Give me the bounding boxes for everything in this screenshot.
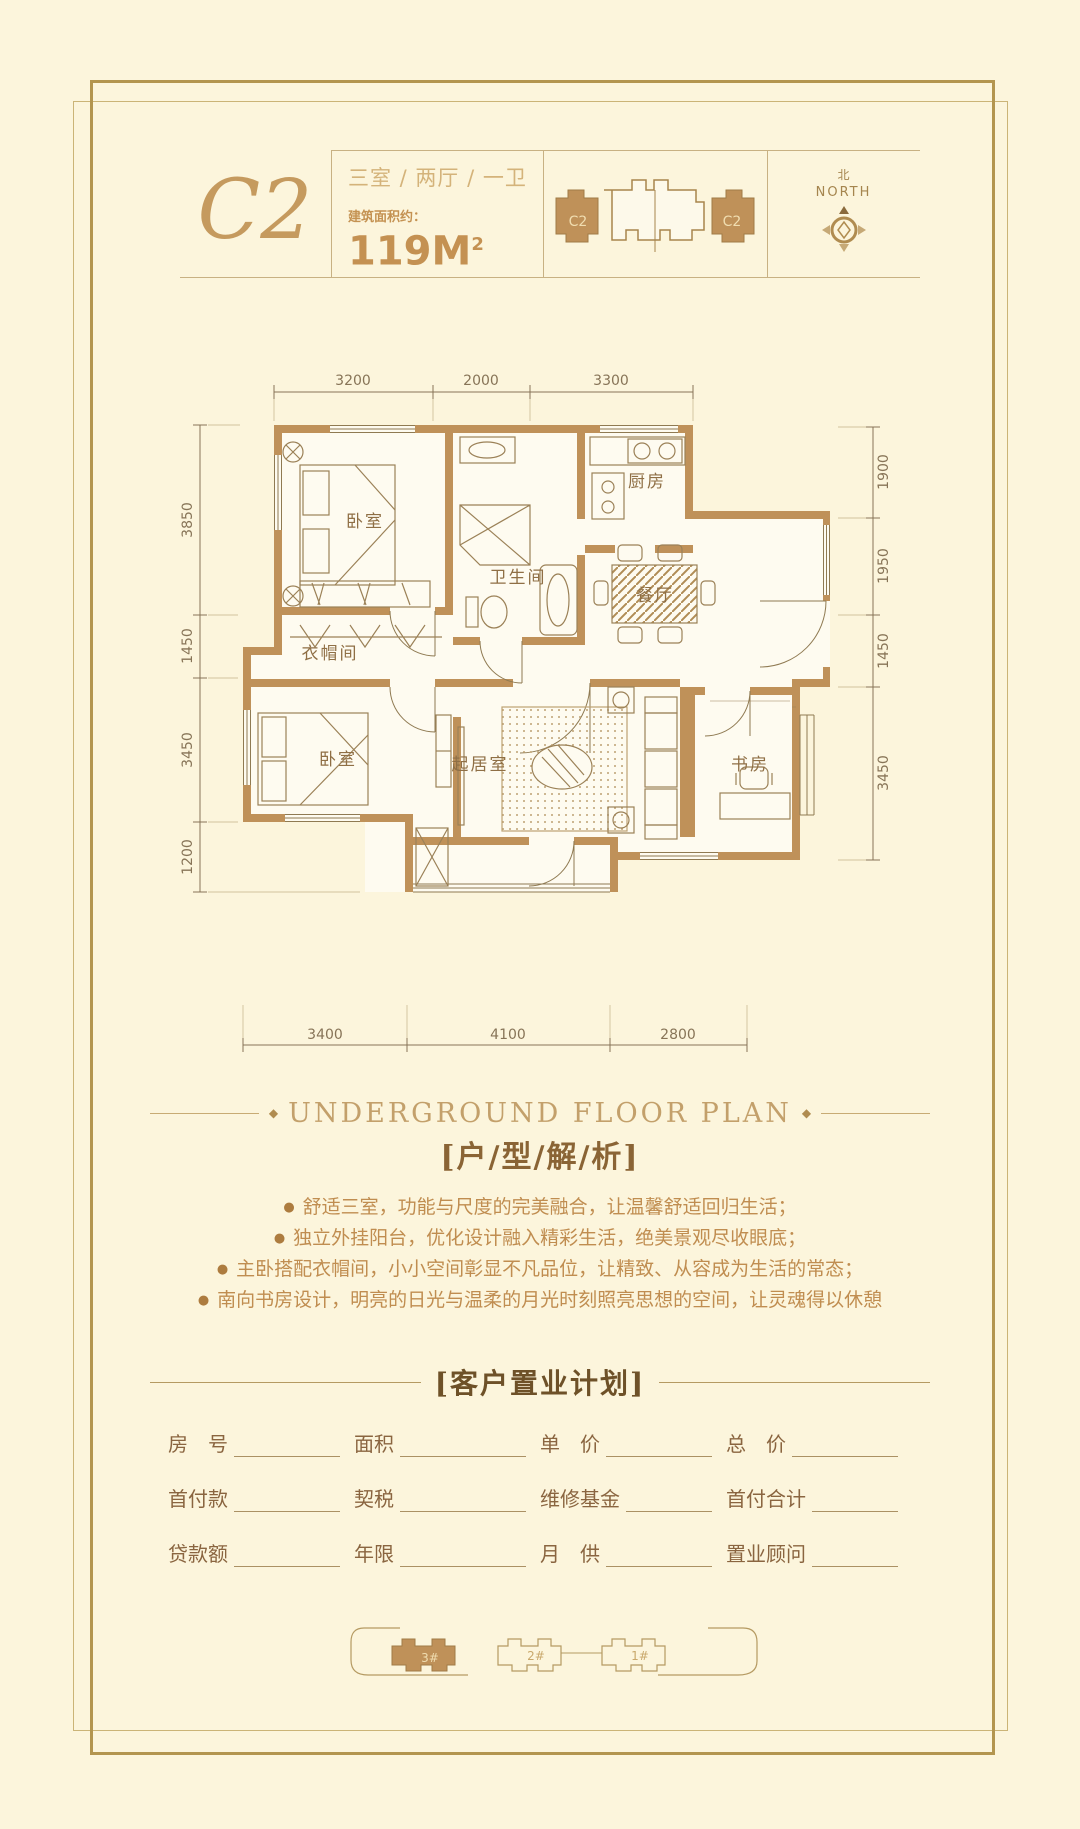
- svg-text:2800: 2800: [660, 1027, 696, 1043]
- blank-line: [400, 1487, 526, 1512]
- building-keyplan: C2 C2: [548, 164, 762, 264]
- keyplan-middle-units: [604, 180, 704, 240]
- area-value: 119M2: [348, 225, 538, 271]
- form-field-maintenance-fund: 维修基金: [540, 1483, 726, 1512]
- svg-text:1900: 1900: [876, 454, 892, 490]
- bullet-dot-icon: ●: [274, 1231, 285, 1246]
- svg-text:1200: 1200: [180, 839, 196, 875]
- area-label: 建筑面积约：: [348, 206, 538, 225]
- title-rule-right: [821, 1113, 930, 1114]
- title-rule-left: [150, 1113, 259, 1114]
- compass-north-cn: 北: [767, 166, 920, 183]
- header-rule-top: [331, 150, 920, 151]
- pp-rule-right: [659, 1382, 930, 1383]
- analysis-title-cn: [户/型/解/析]: [0, 1132, 1080, 1176]
- site-boundary-right: [658, 1628, 757, 1675]
- form-field-deed-tax: 契税: [354, 1483, 540, 1512]
- bullet-item: ●南向书房设计，明亮的日光与温柔的月光时刻照亮思想的空间，让灵魂得以休憩: [75, 1285, 1005, 1316]
- site-building-3-label: 3#: [421, 1651, 439, 1665]
- svg-text:3850: 3850: [180, 502, 196, 538]
- blank-line: [812, 1487, 898, 1512]
- form-row: 房 号 面积 单 价 总 价: [168, 1428, 913, 1457]
- svg-text:3450: 3450: [180, 732, 196, 768]
- room-label-bathroom: 卫生间: [490, 568, 547, 588]
- svg-text:1950: 1950: [876, 548, 892, 584]
- room-label-study: 书房: [731, 755, 769, 775]
- header: C2 三室 / 两厅 / 一卫 建筑面积约： 119M2 C2 C2 北 NOR…: [180, 150, 920, 278]
- blank-line: [626, 1487, 712, 1512]
- compass-rose-icon: [812, 200, 876, 258]
- analysis-title-row: ◆ UNDERGROUND FLOOR PLAN ◆: [150, 1096, 930, 1130]
- blank-line: [234, 1487, 340, 1512]
- blank-line: [234, 1542, 340, 1567]
- analysis-bullets: ●舒适三室，功能与尺度的完美融合，让温馨舒适回归生活； ●独立外挂阳台，优化设计…: [75, 1192, 1005, 1316]
- pp-rule-left: [150, 1382, 421, 1383]
- room-label-bedroom-2: 卧室: [319, 750, 357, 770]
- bullet-item: ●主卧搭配衣帽间，小小空间彰显不凡品位，让精致、从容成为生活的常态；: [75, 1254, 1005, 1285]
- svg-text:3200: 3200: [335, 373, 371, 389]
- svg-text:3300: 3300: [593, 373, 629, 389]
- keyplan-label-right: C2: [723, 214, 742, 230]
- form-field-consultant: 置业顾问: [726, 1538, 912, 1567]
- blank-line: [812, 1542, 898, 1567]
- blank-line: [606, 1432, 712, 1457]
- svg-text:3450: 3450: [876, 755, 892, 791]
- site-building-1-label: 1#: [631, 1649, 649, 1663]
- form-row: 首付款 契税 维修基金 首付合计: [168, 1483, 913, 1512]
- header-divider-2: [543, 150, 544, 277]
- blank-line: [400, 1542, 526, 1567]
- room-label-bedroom-1: 卧室: [346, 512, 384, 532]
- purchase-plan-title-row: [客户置业计划]: [150, 1364, 930, 1400]
- bullet-dot-icon: ●: [198, 1293, 209, 1308]
- bullet-dot-icon: ●: [217, 1262, 228, 1277]
- unit-code: C2: [180, 156, 330, 266]
- unit-layout: 三室 / 两厅 / 一卫: [348, 162, 538, 192]
- header-divider-1: [331, 150, 332, 277]
- purchase-plan-title: [客户置业计划]: [435, 1362, 646, 1402]
- form-field-unit-price: 单 价: [540, 1428, 726, 1457]
- ornament-diamond-right: ◆: [802, 1106, 811, 1120]
- blank-line: [400, 1432, 526, 1457]
- form-field-monthly-payment: 月 供: [540, 1538, 726, 1567]
- svg-text:2000: 2000: [463, 373, 499, 389]
- unit-specs: 三室 / 两厅 / 一卫 建筑面积约： 119M2: [348, 162, 538, 271]
- svg-text:3400: 3400: [307, 1027, 343, 1043]
- bullet-item: ●独立外挂阳台，优化设计融入精彩生活，绝美景观尽收眼底；: [75, 1223, 1005, 1254]
- form-field-area: 面积: [354, 1428, 540, 1457]
- form-field-loan-years: 年限: [354, 1538, 540, 1567]
- form-field-room-no: 房 号: [168, 1428, 354, 1457]
- svg-text:1450: 1450: [876, 633, 892, 669]
- blank-line: [792, 1432, 898, 1457]
- ornament-diamond-left: ◆: [269, 1106, 278, 1120]
- room-label-kitchen: 厨房: [628, 472, 666, 492]
- form-field-down-payment-total: 首付合计: [726, 1483, 912, 1512]
- keyplan-label-left: C2: [569, 214, 588, 230]
- bullet-dot-icon: ●: [283, 1200, 294, 1215]
- form-field-loan-amount: 贷款额: [168, 1538, 354, 1567]
- form-field-total-price: 总 价: [726, 1428, 912, 1457]
- compass: 北 NORTH: [767, 166, 920, 262]
- floor-plan: 3200 2000 3300 3850 1450 3450 1200 1900 …: [150, 315, 940, 1085]
- svg-text:4100: 4100: [490, 1027, 526, 1043]
- form-field-down-payment: 首付款: [168, 1483, 354, 1512]
- blank-line: [606, 1542, 712, 1567]
- purchase-plan-form: 房 号 面积 单 价 总 价 首付款 契税 维修基金 首付合计 贷款额 年限 月…: [168, 1428, 913, 1593]
- form-row: 贷款额 年限 月 供 置业顾问: [168, 1538, 913, 1567]
- svg-text:1450: 1450: [180, 628, 196, 664]
- site-plan: 3# 2# 1#: [340, 1622, 770, 1702]
- compass-north-en: NORTH: [767, 185, 920, 200]
- bullet-item: ●舒适三室，功能与尺度的完美融合，让温馨舒适回归生活；: [75, 1192, 1005, 1223]
- analysis-title-en: UNDERGROUND FLOOR PLAN: [288, 1098, 792, 1129]
- site-building-2-label: 2#: [527, 1649, 545, 1663]
- room-label-dining: 餐厅: [636, 586, 674, 606]
- blank-line: [234, 1432, 340, 1457]
- header-rule-bottom: [180, 277, 920, 278]
- room-label-living: 起居室: [452, 755, 509, 775]
- room-label-cloakroom: 衣帽间: [302, 644, 359, 664]
